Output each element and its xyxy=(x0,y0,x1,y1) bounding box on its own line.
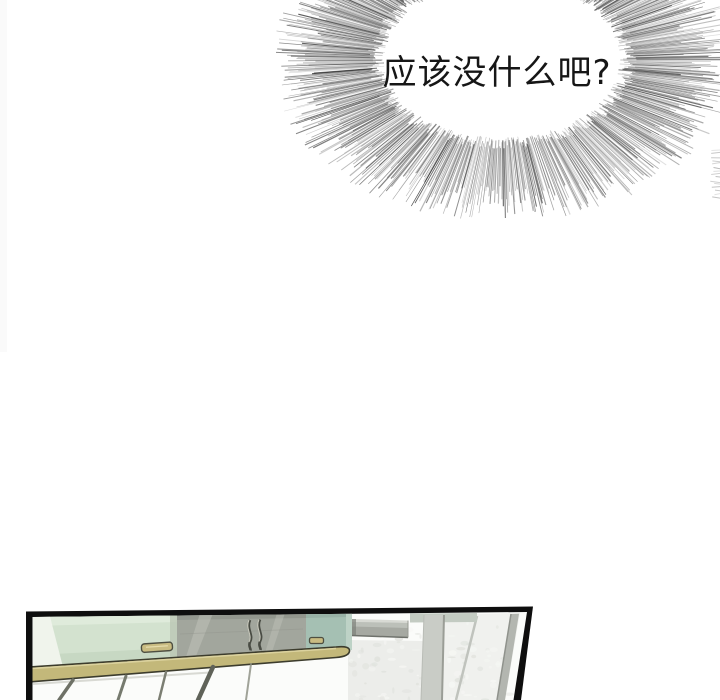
comic-panel xyxy=(0,600,720,700)
door-handle-small xyxy=(310,638,324,644)
speech-bubble: 应该没什么吧? xyxy=(0,0,720,230)
comic-page: 应该没什么吧? xyxy=(0,0,720,700)
burst-bubble-graphic xyxy=(0,0,720,230)
bubble-text: 应该没什么吧? xyxy=(347,53,647,95)
right-edge-streaks xyxy=(710,150,720,198)
door-handle xyxy=(141,642,173,653)
burst-lines xyxy=(276,0,720,219)
range-hood xyxy=(352,619,408,638)
cabinet-door-right xyxy=(306,612,352,651)
